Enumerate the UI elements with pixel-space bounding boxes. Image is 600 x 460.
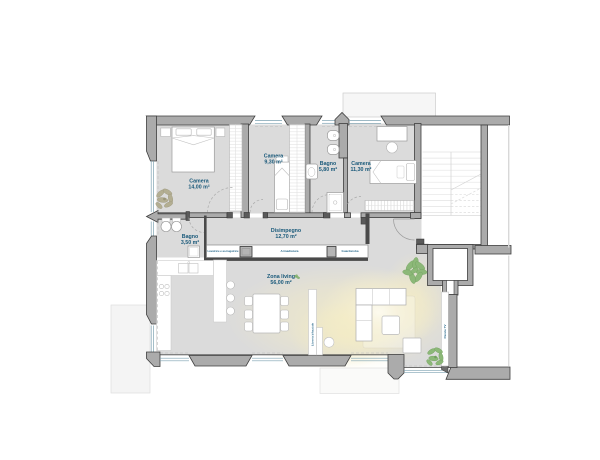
svg-text:12,70 m²: 12,70 m² [275, 234, 296, 240]
svg-text:11,30 m²: 11,30 m² [351, 167, 372, 173]
svg-text:5,80 m²: 5,80 m² [319, 167, 337, 173]
svg-text:14,00 m²: 14,00 m² [188, 185, 209, 191]
svg-text:3,50 m²: 3,50 m² [181, 240, 199, 246]
svg-text:Libreria bifacciale: Libreria bifacciale [311, 323, 315, 346]
svg-text:9,30 m²: 9,30 m² [264, 160, 282, 166]
svg-text:Guardaroba: Guardaroba [342, 249, 359, 253]
svg-text:Parete TV: Parete TV [443, 324, 447, 339]
svg-text:56,00 m²: 56,00 m² [270, 280, 291, 286]
svg-text:Armadiatura: Armadiatura [281, 249, 299, 253]
svg-text:Lavatrice e asciugatrice: Lavatrice e asciugatrice [208, 249, 239, 253]
